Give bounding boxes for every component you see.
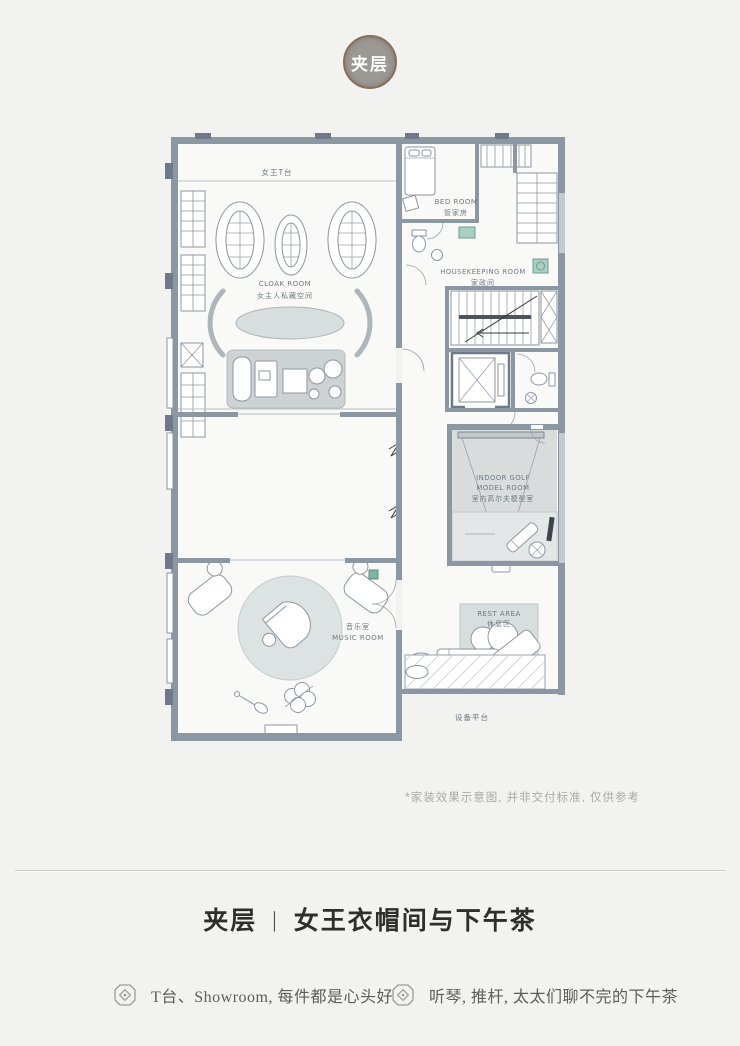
- equipment-platform: [405, 655, 545, 689]
- basin-icon: [406, 666, 428, 679]
- page: 夹层: [0, 0, 740, 1046]
- oval-clothing-rack-icon: [275, 215, 307, 275]
- label-golf-en2: MODEL ROOM: [477, 484, 530, 492]
- window-icon: [559, 433, 565, 563]
- stool-icon: [309, 368, 325, 384]
- label-bed-en: BED ROOM: [435, 198, 478, 206]
- floor-badge: 夹层: [343, 35, 397, 89]
- toilet-icon: [413, 236, 426, 252]
- doorstep-icon: [265, 725, 297, 734]
- floor-badge-label: 夹层: [351, 50, 389, 75]
- feature-bullet-2: 听琴, 推杆, 太太们聊不完的下午茶: [390, 982, 678, 1008]
- chair-icon: [324, 360, 342, 378]
- label-golf-en1: INDOOR GOLF: [476, 474, 530, 482]
- basin-icon: [459, 227, 475, 238]
- toilet-tank-icon: [412, 230, 426, 236]
- label-music-en: MUSIC ROOM: [332, 634, 384, 642]
- window-icon: [167, 639, 173, 683]
- sink-icon: [432, 250, 443, 261]
- washer-icon: [533, 259, 548, 273]
- floor-plan-drawing: 女王T台 CLOAK ROOM 女主人私藏空间 BED ROOM 管家房 HOU…: [165, 133, 565, 745]
- diamond-seal-icon: [112, 982, 138, 1008]
- label-cloak-cn: 女主人私藏空间: [257, 291, 313, 300]
- label-housekeeping-en: HOUSEKEEPING ROOM: [440, 268, 526, 276]
- label-music-cn: 音乐室: [346, 622, 370, 631]
- label-cloak-en: CLOAK ROOM: [259, 280, 311, 288]
- section-divider: [15, 870, 725, 871]
- window-icon: [559, 193, 565, 253]
- toilet-icon: [531, 373, 547, 385]
- floor-plan: 女王T台 CLOAK ROOM 女主人私藏空间 BED ROOM 管家房 HOU…: [165, 133, 565, 745]
- label-rest-cn: 休息区: [487, 619, 511, 628]
- feature-bullet-2-text: 听琴, 推杆, 太太们聊不完的下午茶: [429, 983, 678, 1007]
- plant-icon: [369, 570, 378, 579]
- label-rest-en: REST AREA: [477, 610, 521, 618]
- title-floor: 夹层: [203, 908, 257, 935]
- title-separator: |: [272, 907, 278, 932]
- title-name: 女王衣帽间与下午茶: [294, 908, 537, 935]
- oval-ottoman-icon: [236, 307, 344, 339]
- label-housekeeping-cn: 家政间: [471, 278, 495, 287]
- label-runway: 女王T台: [261, 167, 292, 177]
- disclaimer-note: *家装效果示意图, 并非交付标准, 仅供参考: [405, 789, 640, 805]
- vanity-table-icon: [283, 369, 307, 393]
- label-bed-cn: 管家房: [444, 208, 468, 217]
- toilet-tank-icon: [549, 373, 555, 386]
- stool-icon: [329, 386, 341, 398]
- armchair-icon: [403, 195, 419, 211]
- label-golf-cn: 室内高尔夫模型室: [472, 494, 534, 503]
- elevator: [452, 353, 509, 407]
- oval-clothing-rack-icon: [216, 202, 264, 278]
- diamond-seal-icon: [390, 982, 416, 1008]
- feature-bullet-1: T台、Showroom, 每件都是心头好: [112, 982, 393, 1008]
- daybed-icon: [233, 357, 251, 401]
- window-icon: [167, 338, 173, 408]
- vanity-area: [227, 350, 345, 408]
- staircase: [451, 291, 539, 345]
- label-platform: 设备平台: [455, 712, 489, 722]
- window-icon: [167, 573, 173, 633]
- stool-icon: [309, 389, 319, 399]
- window-icon: [167, 433, 173, 489]
- oval-clothing-rack-icon: [328, 202, 376, 278]
- tray-icon: [259, 371, 270, 380]
- page-title: 夹层|女王衣帽间与下午茶: [0, 901, 740, 937]
- stair-rail-icon: [459, 315, 531, 319]
- cabinet-icon: [541, 291, 557, 343]
- feature-bullet-1-text: T台、Showroom, 每件都是心头好: [151, 983, 393, 1007]
